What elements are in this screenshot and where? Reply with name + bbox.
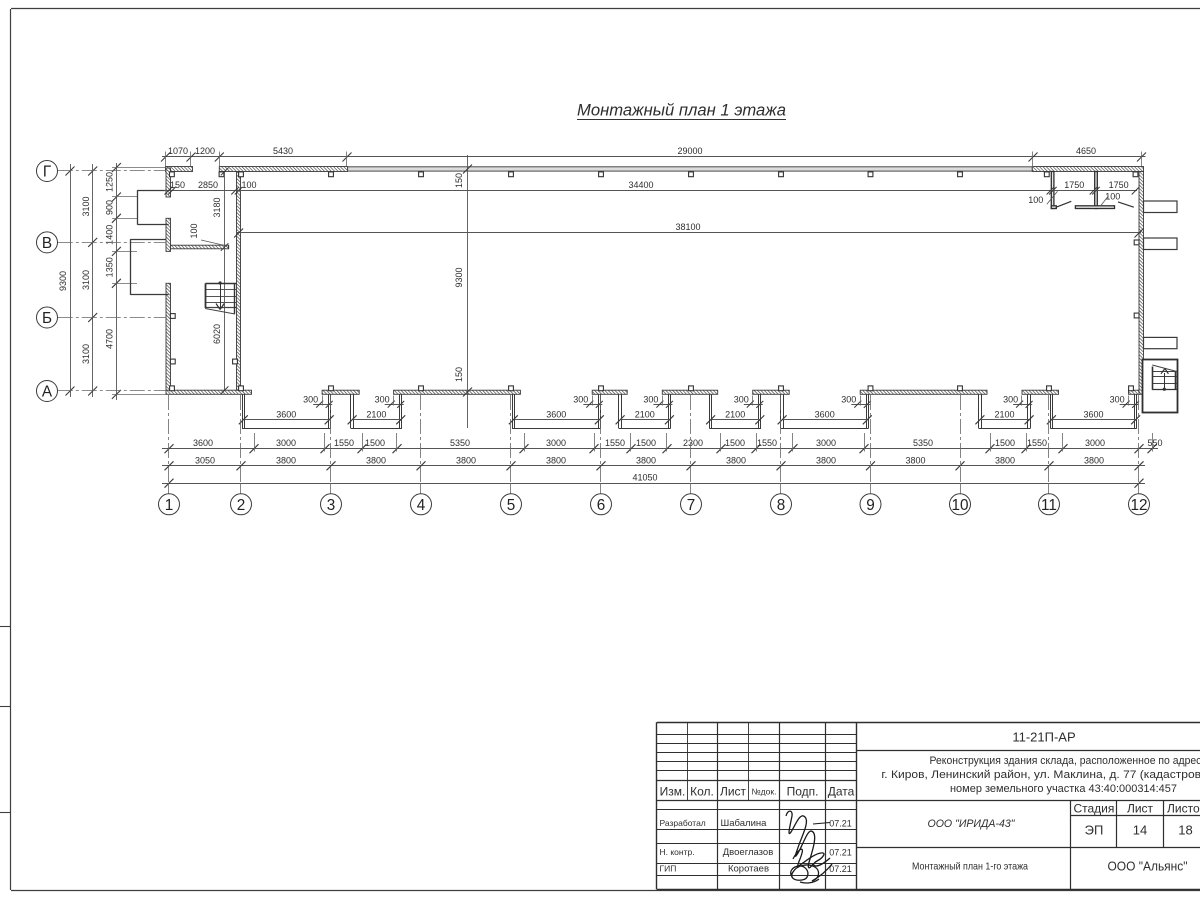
svg-text:5: 5: [507, 497, 516, 514]
svg-text:1750: 1750: [1064, 180, 1084, 190]
svg-text:300: 300: [375, 395, 390, 405]
svg-text:3800: 3800: [905, 455, 925, 465]
svg-text:900: 900: [105, 200, 115, 215]
svg-text:Монтажный план 1 этажа: Монтажный план 1 этажа: [577, 101, 786, 120]
svg-text:3100: 3100: [81, 270, 91, 290]
svg-text:38100: 38100: [675, 222, 700, 232]
svg-text:300: 300: [303, 395, 318, 405]
svg-text:550: 550: [1147, 438, 1162, 448]
svg-text:номер земельного участка 43:40: номер земельного участка 43:40:000314:45…: [950, 783, 1177, 795]
svg-text:1550: 1550: [1027, 438, 1047, 448]
svg-text:1750: 1750: [1109, 180, 1129, 190]
svg-text:07.21: 07.21: [829, 818, 852, 828]
svg-text:Разработал: Разработал: [660, 818, 706, 828]
svg-text:Реконструкция здания склада, р: Реконструкция здания склада, расположенн…: [930, 755, 1200, 767]
svg-text:1200: 1200: [195, 146, 215, 156]
svg-text:3600: 3600: [193, 438, 213, 448]
svg-text:Двоеглазов: Двоеглазов: [723, 847, 774, 858]
svg-text:1070: 1070: [168, 146, 188, 156]
svg-text:100: 100: [189, 223, 199, 238]
svg-text:300: 300: [1003, 395, 1018, 405]
svg-text:Изм.: Изм.: [660, 785, 686, 799]
svg-text:1500: 1500: [365, 438, 385, 448]
svg-text:4: 4: [417, 497, 426, 514]
svg-text:3100: 3100: [81, 196, 91, 216]
svg-text:18: 18: [1178, 823, 1192, 838]
svg-text:8: 8: [777, 497, 786, 514]
svg-text:3800: 3800: [546, 455, 566, 465]
svg-text:2100: 2100: [725, 409, 745, 419]
svg-text:ГИП: ГИП: [660, 864, 677, 874]
svg-text:2100: 2100: [994, 409, 1014, 419]
svg-text:№док.: №док.: [752, 787, 777, 797]
svg-text:1550: 1550: [605, 438, 625, 448]
svg-text:2100: 2100: [635, 409, 655, 419]
svg-text:3180: 3180: [212, 197, 222, 217]
svg-text:100: 100: [1028, 195, 1043, 205]
svg-text:11-21П-АР: 11-21П-АР: [1012, 730, 1075, 745]
svg-text:3000: 3000: [276, 438, 296, 448]
svg-text:34400: 34400: [628, 180, 653, 190]
svg-text:300: 300: [643, 395, 658, 405]
svg-text:Стадия: Стадия: [1073, 802, 1114, 816]
svg-text:9: 9: [866, 497, 875, 514]
svg-text:3000: 3000: [1085, 438, 1105, 448]
svg-text:1: 1: [165, 497, 174, 514]
svg-text:3100: 3100: [81, 344, 91, 364]
svg-text:3600: 3600: [1083, 409, 1103, 419]
svg-text:Монтажный план 1-го этажа: Монтажный план 1-го этажа: [912, 862, 1028, 873]
svg-text:2100: 2100: [366, 409, 386, 419]
svg-text:07.21: 07.21: [829, 847, 852, 857]
svg-text:150: 150: [170, 180, 185, 190]
svg-text:2: 2: [237, 497, 246, 514]
svg-text:9300: 9300: [58, 271, 68, 291]
svg-text:3600: 3600: [276, 409, 296, 419]
svg-text:5350: 5350: [450, 438, 470, 448]
svg-text:Подп.: Подп.: [787, 785, 819, 799]
svg-text:2300: 2300: [683, 438, 703, 448]
svg-text:150: 150: [454, 173, 464, 188]
svg-text:3800: 3800: [816, 455, 836, 465]
svg-text:г. Киров, Ленинский район, ул.: г. Киров, Ленинский район, ул. Маклина, …: [881, 769, 1200, 781]
svg-text:А: А: [42, 384, 53, 401]
svg-text:300: 300: [734, 395, 749, 405]
svg-text:1550: 1550: [757, 438, 777, 448]
svg-text:300: 300: [573, 395, 588, 405]
svg-text:3800: 3800: [726, 455, 746, 465]
svg-text:1250: 1250: [105, 172, 115, 192]
svg-text:14: 14: [1133, 823, 1147, 838]
svg-text:3600: 3600: [815, 409, 835, 419]
svg-text:6020: 6020: [212, 324, 222, 344]
svg-text:ООО "ИРИДА-43": ООО "ИРИДА-43": [928, 818, 1016, 830]
svg-text:5430: 5430: [273, 146, 293, 156]
svg-text:Коротаев: Коротаев: [728, 864, 769, 875]
svg-text:3: 3: [327, 497, 336, 514]
svg-text:07.21: 07.21: [829, 864, 852, 874]
svg-text:Шабалина: Шабалина: [721, 818, 768, 829]
svg-text:7: 7: [687, 497, 696, 514]
svg-text:3050: 3050: [195, 455, 215, 465]
svg-text:В: В: [42, 235, 52, 252]
svg-text:Лист: Лист: [720, 785, 747, 799]
svg-text:300: 300: [841, 395, 856, 405]
svg-text:4700: 4700: [105, 329, 115, 349]
svg-text:2850: 2850: [198, 180, 218, 190]
svg-text:1350: 1350: [105, 257, 115, 277]
svg-text:29000: 29000: [677, 146, 702, 156]
svg-text:5350: 5350: [913, 438, 933, 448]
svg-text:300: 300: [1110, 395, 1125, 405]
svg-text:1400: 1400: [105, 225, 115, 245]
svg-text:3600: 3600: [546, 409, 566, 419]
svg-text:100: 100: [241, 180, 256, 190]
svg-text:3800: 3800: [456, 455, 476, 465]
svg-text:11: 11: [1041, 497, 1057, 514]
svg-text:9300: 9300: [454, 267, 464, 287]
svg-text:1500: 1500: [725, 438, 745, 448]
svg-text:3800: 3800: [995, 455, 1015, 465]
svg-text:Кол.: Кол.: [690, 785, 714, 799]
svg-text:3800: 3800: [366, 455, 386, 465]
svg-text:Г: Г: [43, 164, 51, 181]
svg-text:4650: 4650: [1076, 146, 1096, 156]
svg-text:1550: 1550: [334, 438, 354, 448]
svg-text:12: 12: [1130, 497, 1147, 514]
svg-text:41050: 41050: [632, 472, 657, 482]
svg-text:Б: Б: [42, 310, 52, 327]
svg-text:Лист: Лист: [1127, 802, 1154, 816]
svg-text:1500: 1500: [636, 438, 656, 448]
svg-text:Н. контр.: Н. контр.: [660, 847, 695, 857]
svg-text:150: 150: [454, 367, 464, 382]
svg-text:Листов: Листов: [1167, 802, 1200, 816]
svg-text:1500: 1500: [995, 438, 1015, 448]
svg-text:ЭП: ЭП: [1085, 823, 1104, 838]
svg-text:3000: 3000: [546, 438, 566, 448]
svg-text:3800: 3800: [636, 455, 656, 465]
svg-text:10: 10: [951, 497, 968, 514]
svg-text:3800: 3800: [276, 455, 296, 465]
svg-text:3000: 3000: [816, 438, 836, 448]
svg-text:ООО "Альянс": ООО "Альянс": [1108, 859, 1188, 874]
svg-text:Дата: Дата: [828, 785, 855, 799]
svg-text:6: 6: [597, 497, 606, 514]
svg-text:3800: 3800: [1084, 455, 1104, 465]
